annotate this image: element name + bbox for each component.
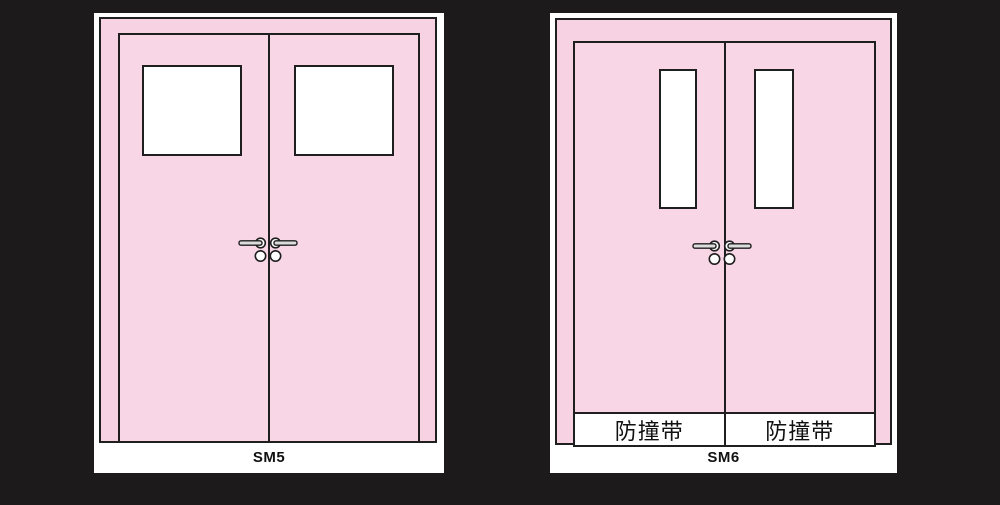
door-label: SM5: [94, 445, 444, 471]
vision-window: [294, 65, 394, 156]
door-diagram-sm6: 防撞带 防撞带 SM6: [550, 13, 897, 473]
door-lever-handle-icon: [690, 238, 754, 268]
vision-window: [754, 69, 794, 209]
lever-bar-icon: [728, 244, 751, 248]
anti-collision-strip-right: 防撞带: [726, 412, 875, 445]
vision-window: [659, 69, 697, 209]
lock-cylinder-icon: [709, 254, 719, 264]
vision-window: [142, 65, 242, 156]
lock-cylinder-icon: [255, 251, 265, 261]
lever-bar-icon: [274, 241, 297, 245]
lock-cylinder-icon: [724, 254, 734, 264]
door-frame: [99, 17, 437, 443]
diagram-canvas: SM5 防撞带 防撞带: [0, 0, 1000, 505]
door-diagram-sm5: SM5: [94, 13, 444, 473]
lever-bar-icon: [239, 241, 262, 245]
door-frame: 防撞带 防撞带: [555, 18, 892, 445]
lock-cylinder-icon: [270, 251, 280, 261]
door-label: SM6: [550, 445, 897, 471]
door-lever-handle-icon: [236, 235, 300, 265]
lever-bar-icon: [693, 244, 716, 248]
anti-collision-strip-row: 防撞带 防撞带: [575, 412, 874, 445]
anti-collision-strip-left: 防撞带: [575, 412, 724, 445]
